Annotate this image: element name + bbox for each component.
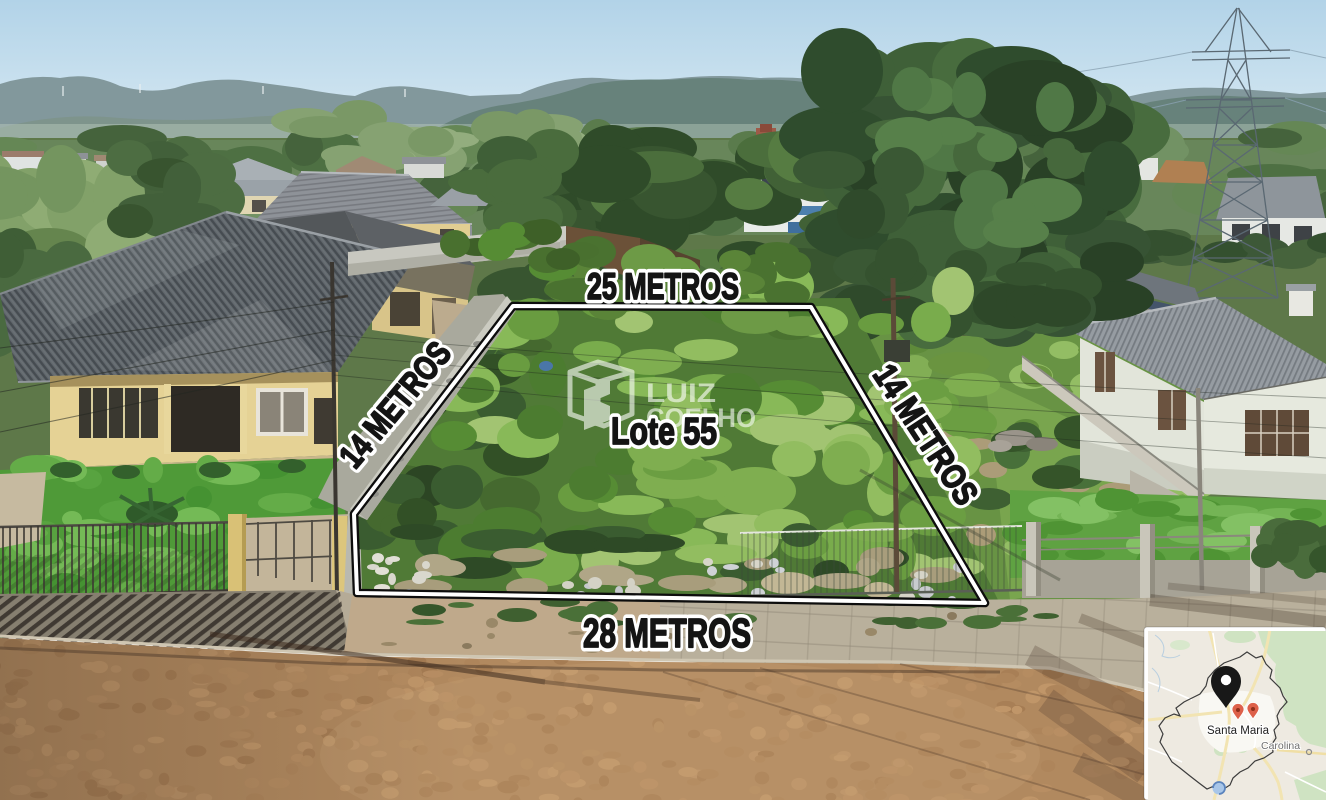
svg-text:Carolina: Carolina <box>1261 740 1300 752</box>
svg-text:Lote 55: Lote 55 <box>611 411 717 453</box>
svg-text:25 METROS: 25 METROS <box>587 266 739 307</box>
svg-text:Santa Maria: Santa Maria <box>1207 725 1270 737</box>
svg-text:28 METROS: 28 METROS <box>583 610 751 656</box>
